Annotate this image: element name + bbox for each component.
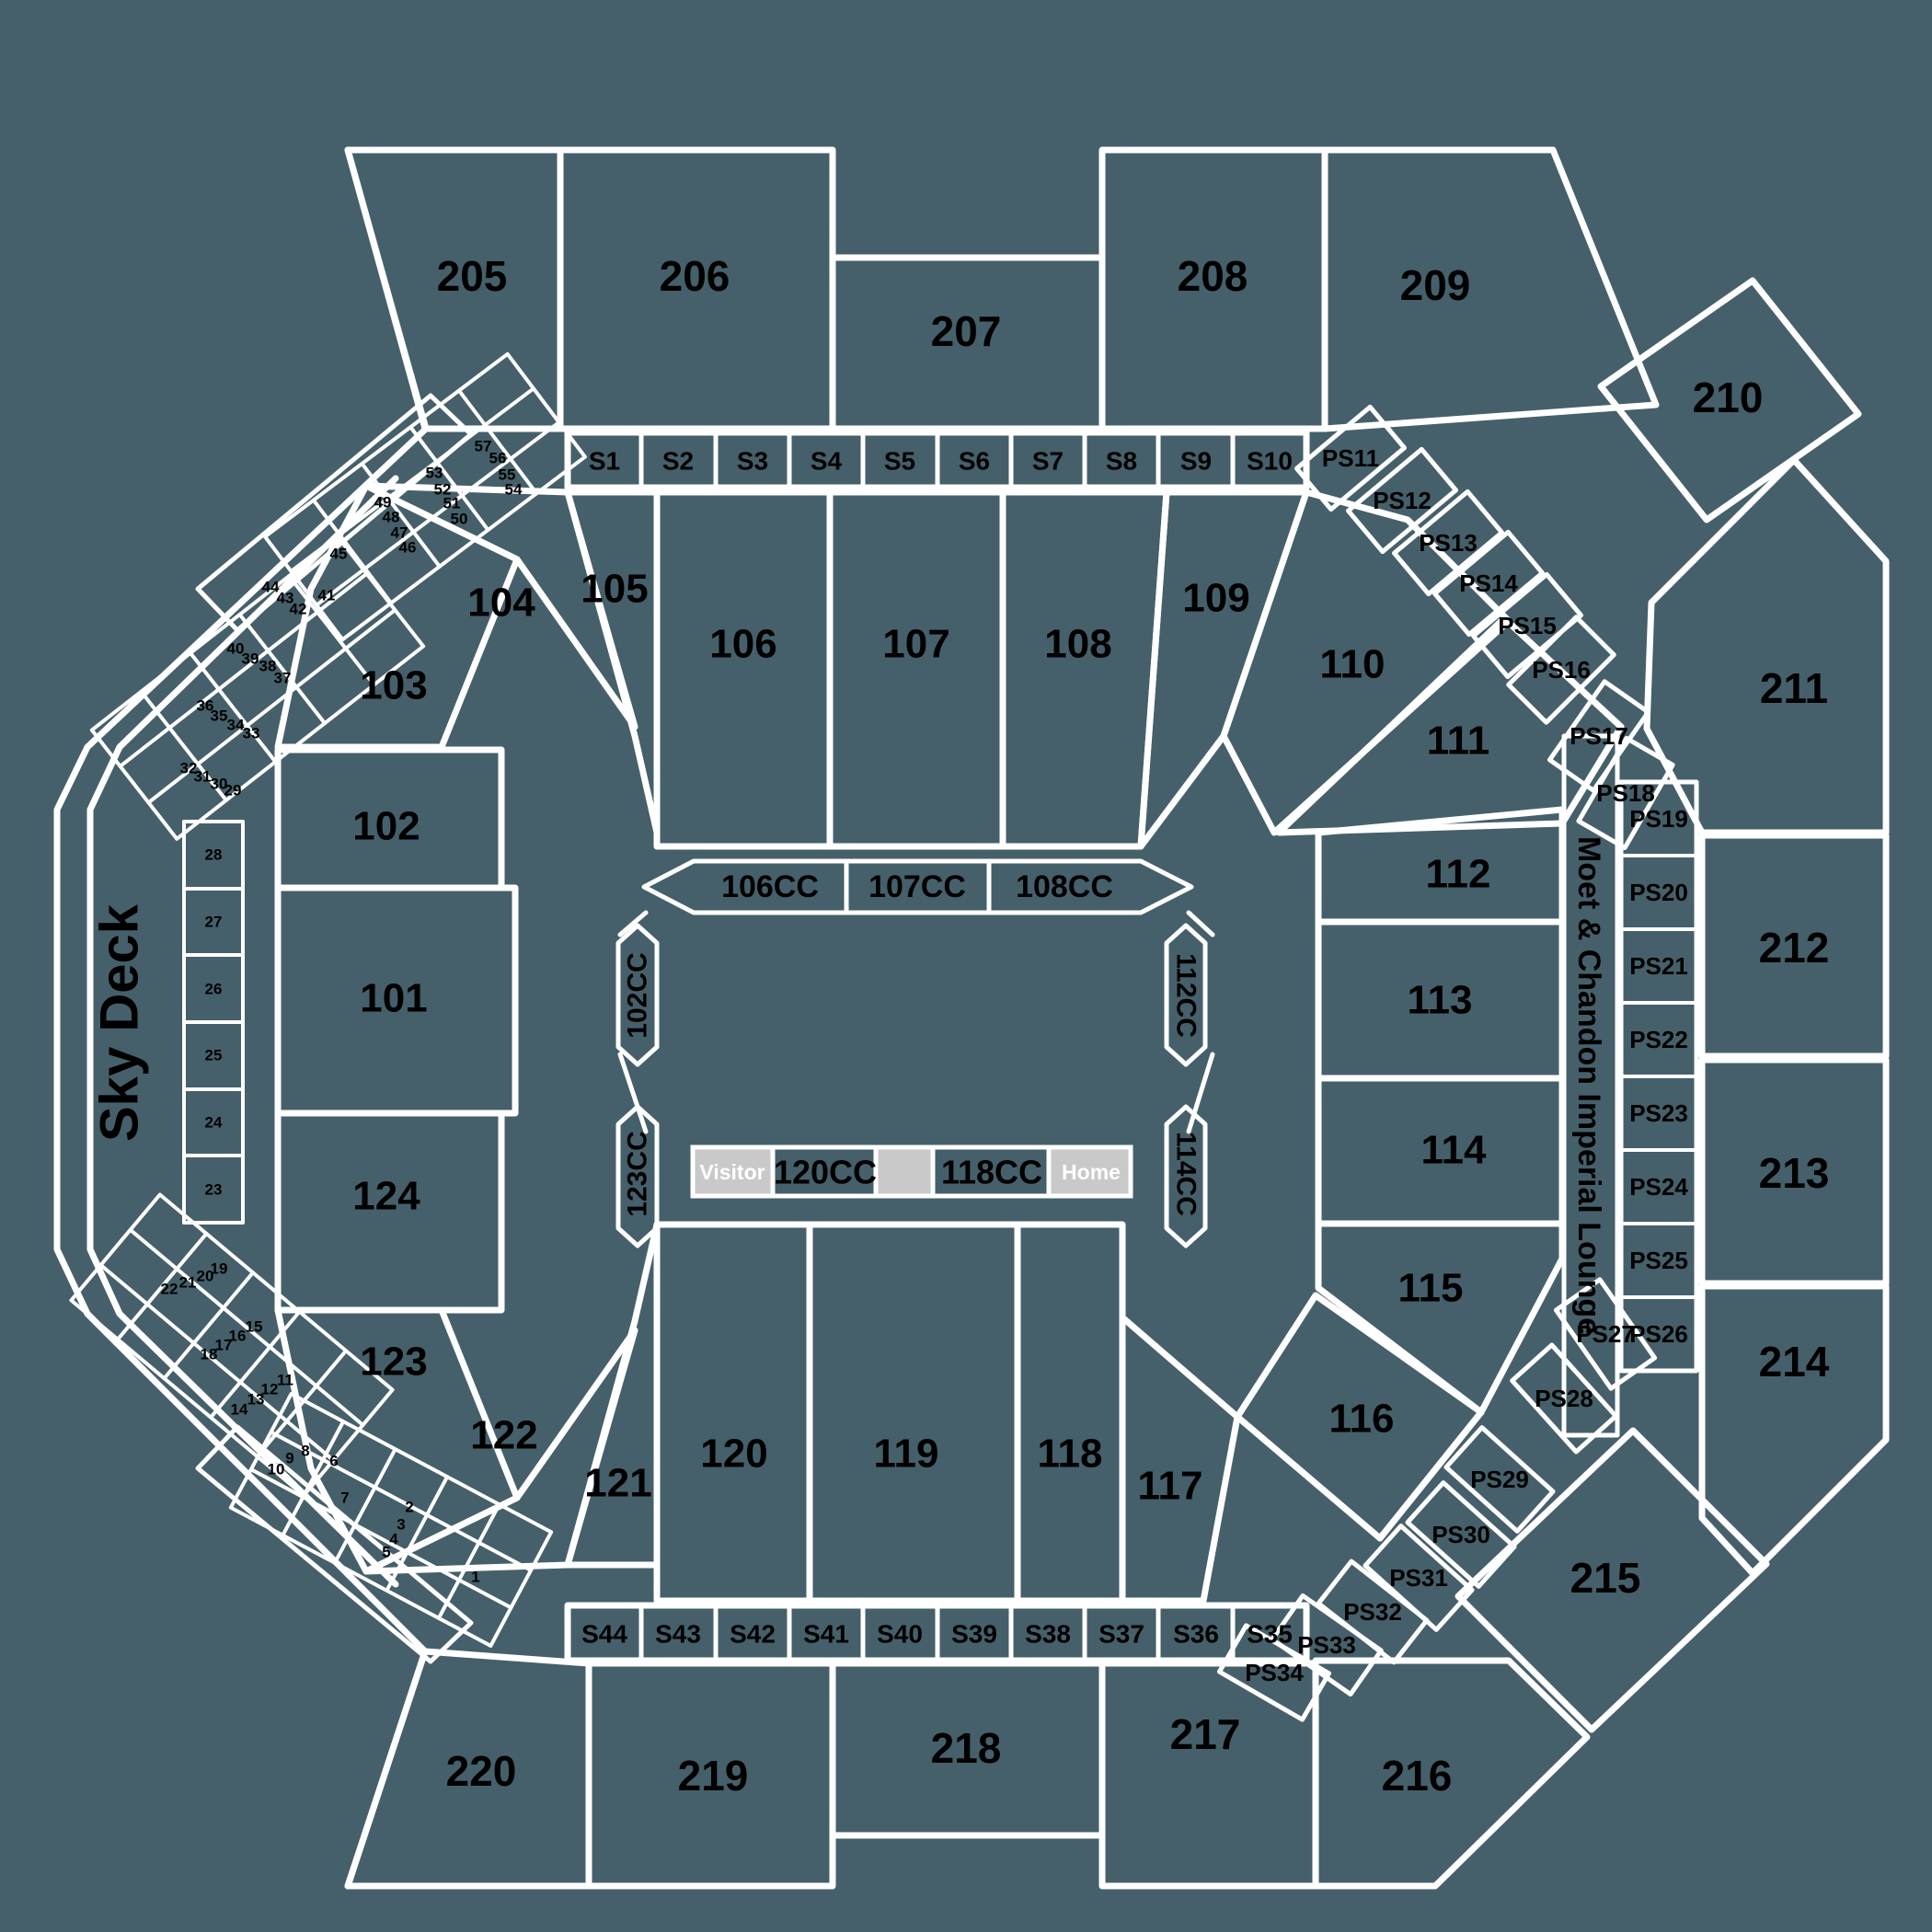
108cc-label: 108CC [1016,869,1113,904]
102-label: 102 [352,804,420,849]
205-label: 205 [437,252,508,300]
29-label: 29 [224,782,242,799]
103-label: 103 [360,663,427,708]
section-120-shape[interactable] [657,1225,810,1601]
s8-label: S8 [1106,447,1137,476]
25-label: 25 [205,1047,223,1064]
213-label: 213 [1759,1149,1830,1197]
s2-label: S2 [662,447,694,476]
33-label: 33 [243,725,260,742]
106cc-label: 106CC [721,869,819,904]
moet-chandon-imperial-lounge-label: Moet & Chandon Imperial Lounge [1571,836,1606,1335]
ps15-label: PS15 [1498,612,1557,639]
ps25-label: PS25 [1629,1247,1688,1274]
s44-label: S44 [581,1620,627,1649]
115-label: 115 [1398,1266,1464,1311]
112-label: 112 [1426,852,1491,897]
ps22-label: PS22 [1629,1026,1688,1053]
46-label: 46 [399,539,417,557]
section-209-shape[interactable] [1325,150,1656,429]
113-label: 113 [1408,978,1473,1023]
108-label: 108 [1044,622,1111,667]
41-label: 41 [318,587,336,604]
s36-label: S36 [1173,1620,1219,1649]
112cc-label: 112CC [1171,953,1202,1038]
123cc-label: 123CC [623,1131,653,1216]
s40-label: S40 [877,1620,923,1649]
ps24-label: PS24 [1629,1173,1688,1201]
45-label: 45 [330,546,348,563]
110-label: 110 [1320,642,1386,687]
22-label: 22 [161,1281,178,1298]
54-label: 54 [505,481,523,499]
27-label: 27 [205,914,223,931]
102cc-label: 102CC [623,952,653,1038]
suite-row-top-dividers [641,432,1233,488]
8-label: 8 [301,1443,309,1460]
home-label: Home [1062,1160,1121,1184]
ps16-label: PS16 [1532,656,1591,684]
7-label: 7 [340,1489,349,1507]
ps31-label: PS31 [1389,1564,1448,1592]
ps26-label: PS26 [1629,1320,1688,1348]
s42-label: S42 [730,1620,776,1649]
21-label: 21 [179,1274,197,1292]
1-label: 1 [471,1569,479,1586]
56-label: 56 [489,450,507,467]
ps17-label: PS17 [1570,722,1628,750]
s37-label: S37 [1098,1620,1144,1649]
court-corner-connectors [620,913,1213,1132]
section-117-shape[interactable] [1122,1317,1237,1601]
4-label: 4 [389,1531,398,1548]
9-label: 9 [285,1450,293,1467]
107-label: 107 [882,622,949,667]
s5-label: S5 [884,447,915,476]
ps13-label: PS13 [1419,529,1478,557]
ps18-label: PS18 [1596,779,1655,807]
5-label: 5 [382,1544,390,1561]
120cc-label: 120CC [774,1154,877,1191]
206-label: 206 [660,252,730,300]
24-label: 24 [205,1114,223,1132]
217-label: 217 [1170,1710,1241,1758]
s9-label: S9 [1180,447,1212,476]
124-label: 124 [352,1174,420,1219]
section-217-shape[interactable] [1102,1663,1316,1886]
215-label: 215 [1570,1554,1641,1602]
23-label: 23 [205,1181,223,1199]
120-label: 120 [700,1432,767,1477]
ps32-label: PS32 [1343,1598,1402,1626]
section-105-shape[interactable] [568,492,657,833]
28-label: 28 [205,846,223,864]
10-label: 10 [268,1461,285,1478]
s41-label: S41 [803,1620,849,1649]
117-label: 117 [1138,1464,1203,1509]
s39-label: S39 [951,1620,997,1649]
15-label: 15 [246,1318,263,1336]
ps19-label: PS19 [1629,805,1688,833]
bench-spacer-box [876,1147,933,1196]
ps20-label: PS20 [1629,879,1688,906]
109-label: 109 [1182,576,1249,621]
ps34-label: PS34 [1245,1659,1304,1686]
2-label: 2 [405,1499,413,1516]
123-label: 123 [360,1340,427,1385]
122-label: 122 [470,1413,537,1458]
219-label: 219 [678,1752,749,1800]
ps30-label: PS30 [1432,1521,1490,1548]
31-label: 31 [194,768,212,786]
section-106-shape[interactable] [657,492,830,846]
50-label: 50 [451,511,468,528]
section-109-shape[interactable] [1141,492,1306,846]
105-label: 105 [581,567,648,612]
s3-label: S3 [737,447,768,476]
118-label: 118 [1038,1432,1103,1477]
114cc-label: 114CC [1171,1132,1202,1216]
ps21-label: PS21 [1629,952,1688,980]
ps12-label: PS12 [1373,487,1432,514]
mini-suite-grid-upper-shallow [265,354,585,639]
220-label: 220 [446,1747,517,1795]
s7-label: S7 [1032,447,1064,476]
14-label: 14 [231,1401,248,1419]
210-label: 210 [1693,374,1764,421]
211-label: 211 [1760,664,1828,712]
216-label: 216 [1382,1752,1453,1800]
12-label: 12 [261,1381,279,1398]
119-label: 119 [874,1432,939,1477]
seating-map-svg: 2052062072082092102112122132142152162172… [0,0,1932,1932]
19-label: 19 [211,1260,228,1278]
ps11-label: PS11 [1322,444,1379,472]
visitor-label: Visitor [699,1160,765,1184]
208-label: 208 [1178,252,1248,300]
ps33-label: PS33 [1297,1631,1356,1659]
212-label: 212 [1759,924,1830,972]
section-119-shape[interactable] [810,1225,1018,1601]
section-107-shape[interactable] [830,492,1003,846]
labels-layer: 2052062072082092102112122132142152162172… [90,252,1830,1800]
116-label: 116 [1329,1397,1395,1442]
section-211-shape[interactable] [1647,460,1886,833]
ps28-label: PS28 [1535,1385,1593,1412]
114-label: 114 [1421,1128,1488,1173]
35-label: 35 [211,707,228,725]
26-label: 26 [205,981,223,998]
121-label: 121 [584,1461,651,1506]
s6-label: S6 [959,447,990,476]
s4-label: S4 [811,447,843,476]
106-label: 106 [709,622,776,667]
arena-seating-chart: 2052062072082092102112122132142152162172… [0,0,1932,1932]
53-label: 53 [426,465,443,482]
suite-row-top-labels: S1S2S3S4S5S6S7S8S9S10 [589,447,1293,476]
ps29-label: PS29 [1470,1466,1529,1493]
107cc-label: 107CC [868,869,966,904]
118cc-label: 118CC [941,1154,1042,1191]
218-label: 218 [931,1724,1002,1772]
104-label: 104 [467,581,535,626]
209-label: 209 [1400,261,1471,309]
section-118-shape[interactable] [1018,1225,1122,1601]
s35-label: S35 [1247,1620,1293,1649]
s10-label: S10 [1247,447,1293,476]
16-label: 16 [229,1328,247,1345]
11-label: 11 [277,1372,293,1389]
ps14-label: PS14 [1459,569,1518,597]
s38-label: S38 [1025,1620,1071,1649]
101-label: 101 [360,976,427,1021]
sky-deck-label: Sky Deck [90,903,150,1142]
ps23-label: PS23 [1629,1099,1688,1127]
214-label: 214 [1759,1338,1830,1386]
s43-label: S43 [655,1620,701,1649]
section-121-shape[interactable] [568,1225,657,1565]
ps-column-right-dividers [1621,856,1696,1297]
s1-label: S1 [589,447,620,476]
207-label: 207 [931,307,1002,355]
39-label: 39 [242,650,259,668]
42-label: 42 [290,601,307,618]
6-label: 6 [329,1453,338,1470]
37-label: 37 [274,670,292,687]
111-label: 111 [1427,719,1490,764]
